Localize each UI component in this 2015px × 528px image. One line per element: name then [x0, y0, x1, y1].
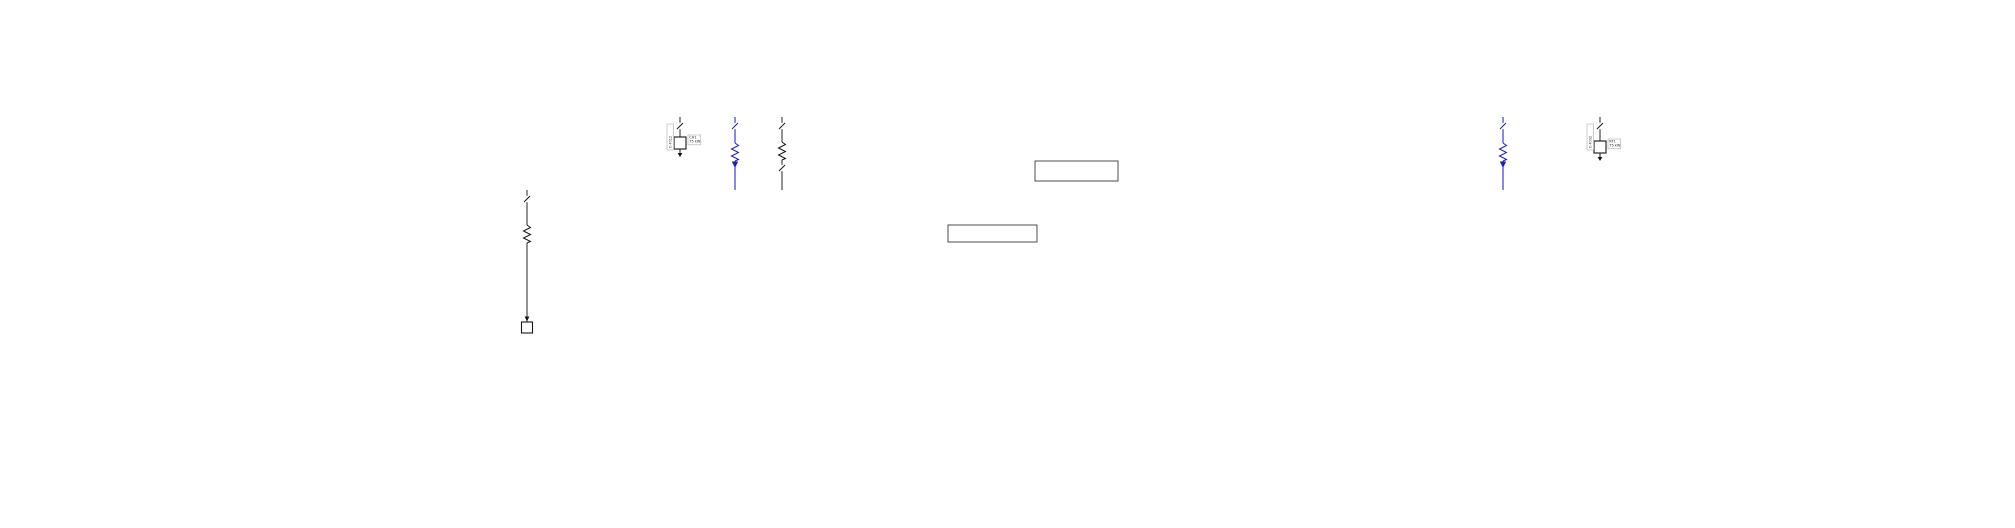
breaker-icon[interactable]: [1597, 123, 1603, 129]
single-line-diagram-canvas: C-F002RT175 kWC-F012CH175 kW: [0, 0, 2015, 528]
arrow-icon: [1500, 162, 1506, 169]
svg-text:75 kW: 75 kW: [689, 140, 701, 144]
load-box[interactable]: [522, 317, 533, 334]
breaker-icon[interactable]: [677, 123, 683, 129]
breaker-icon[interactable]: [524, 196, 530, 202]
transformer-coil-icon[interactable]: [731, 143, 739, 161]
breaker-icon[interactable]: [779, 123, 785, 129]
equipment-box[interactable]: [674, 137, 686, 157]
breaker-icon[interactable]: [1500, 123, 1506, 129]
mcc-box[interactable]: [948, 225, 1037, 242]
breaker-icon[interactable]: [732, 123, 738, 129]
rotated-tag-box: C-F002: [1587, 124, 1594, 150]
label-box: CH175 kW: [688, 135, 701, 145]
feeder-F012[interactable]: C-F012CH175 kW: [667, 117, 701, 157]
svg-text:C-F002: C-F002: [1589, 136, 1593, 148]
rotated-tag-box: C-F012: [667, 124, 674, 150]
transformer-coil-icon[interactable]: [1499, 143, 1507, 161]
svg-text:75 kW: 75 kW: [1609, 144, 1621, 148]
transformer-coil-icon[interactable]: [778, 142, 786, 160]
feeder-F002[interactable]: C-F002RT175 kW: [1587, 117, 1621, 161]
feeder-F101[interactable]: [522, 190, 533, 333]
feeder-TG1[interactable]: [731, 117, 739, 190]
equipment-box[interactable]: [1594, 141, 1606, 161]
breaker-icon[interactable]: [779, 165, 785, 171]
svg-text:C-F012: C-F012: [669, 136, 673, 148]
label-box: RT175 kW: [1608, 139, 1621, 149]
feeder-TB1[interactable]: [1499, 117, 1507, 190]
feeder-TA1[interactable]: [778, 117, 786, 190]
arrow-icon: [732, 162, 738, 169]
net-eq-box[interactable]: [1035, 161, 1118, 181]
transformer-coil-icon[interactable]: [523, 225, 531, 243]
